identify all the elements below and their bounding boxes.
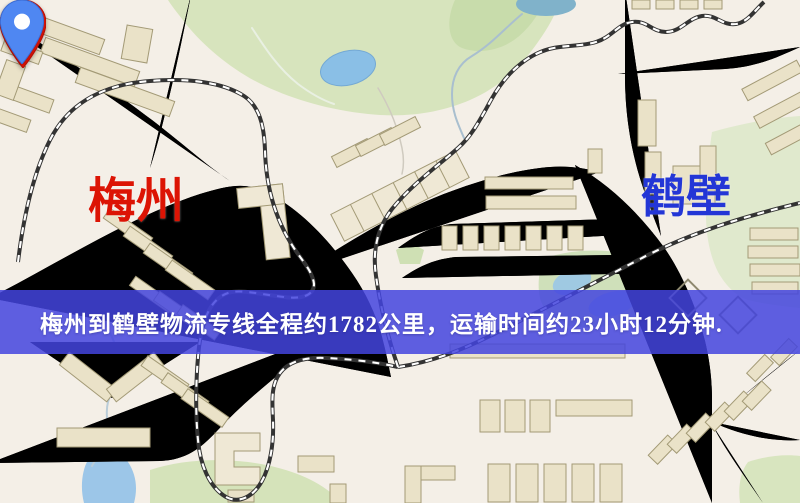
map-screenshot: 梅州到鹤壁物流专线全程约1782公里，运输时间约23小时12分钟. 梅州 鹤壁 — [0, 0, 800, 503]
destination-map-pin-icon — [0, 0, 44, 64]
route-info-text: 梅州到鹤壁物流专线全程约1782公里，运输时间约23小时12分钟. — [0, 305, 723, 339]
route-info-banner: 梅州到鹤壁物流专线全程约1782公里，运输时间约23小时12分钟. — [0, 290, 800, 354]
origin-city-label: 梅州 — [88, 178, 184, 226]
map-background — [0, 0, 800, 503]
destination-city-label: 鹤壁 — [641, 175, 731, 220]
